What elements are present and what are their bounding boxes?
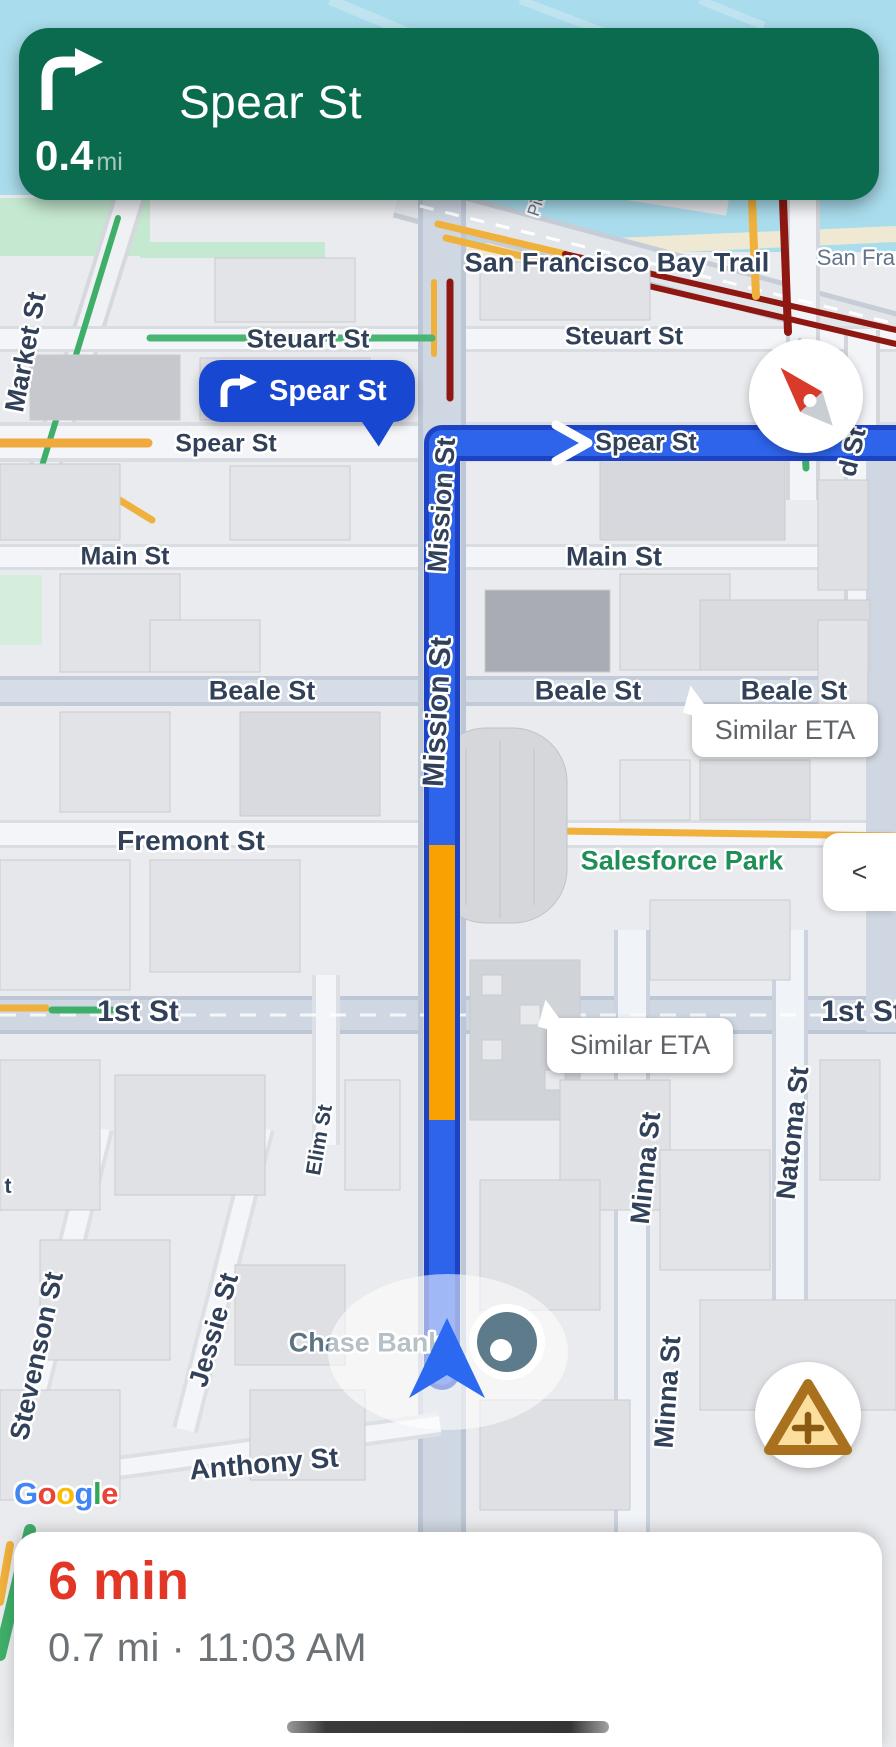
trip-eta: 6 min (48, 1550, 189, 1612)
map-label-bay-trail: San Francisco Bay Trail (465, 248, 770, 279)
map-label-spear-right: Spear St (595, 429, 696, 458)
map-label-spear-left: Spear St (175, 430, 276, 459)
alternate-route-bubble[interactable]: Similar ETA (547, 1018, 733, 1073)
navigation-banner[interactable]: 0.4mi Spear St (19, 28, 879, 200)
trip-details: 0.7 mi · 11:03 AM (48, 1626, 367, 1671)
map-label-san-fran-partial: San Fran (817, 245, 896, 271)
trip-bottom-sheet[interactable]: 6 min 0.7 mi · 11:03 AM (14, 1532, 882, 1747)
map-label-beale-left: Beale St (209, 676, 316, 707)
turn-callout: Spear St (199, 360, 415, 422)
turn-right-icon (217, 374, 257, 408)
map-label-beale-center: Beale St (535, 676, 642, 707)
sheet-drag-handle[interactable] (287, 1721, 609, 1733)
dark-building (485, 590, 610, 672)
map-label-first-right: 1st St (821, 995, 896, 1029)
eta-bubble-text: Similar ETA (570, 1030, 711, 1061)
alternate-route-bubble[interactable]: Similar ETA (692, 704, 878, 757)
compass-button[interactable] (749, 339, 863, 453)
report-incident-button[interactable] (755, 1362, 861, 1468)
turn-callout-label: Spear St (269, 375, 387, 408)
map-label-main-right: Main St (566, 542, 662, 573)
google-logo: Google (14, 1476, 118, 1512)
map-label-street-partial: t (5, 1175, 12, 1199)
distance-to-maneuver: 0.4mi (35, 132, 123, 180)
map-label-salesforce-park: Salesforce Park (581, 846, 784, 877)
map-label-first-left: 1st St (97, 995, 179, 1029)
next-street-name: Spear St (179, 28, 362, 176)
maps-navigation-screen: San Francisco Bay Trail San Fran Pie Ste… (0, 0, 896, 1747)
map-label-steuart-left: Steuart St (247, 324, 370, 355)
distance-unit: mi (96, 148, 122, 176)
turn-right-arrow-icon (37, 48, 103, 110)
compass-needle-icon (749, 339, 863, 453)
map-label-fremont: Fremont St (117, 825, 265, 857)
collapse-panel-button[interactable]: < (823, 833, 896, 911)
distance-value: 0.4 (35, 132, 93, 179)
map-label-steuart-right: Steuart St (565, 323, 683, 352)
map-label-chase-bank: Chase Bank (289, 1328, 444, 1359)
map-label-beale-right: Beale St (741, 676, 848, 707)
map-label-main-left: Main St (81, 543, 170, 572)
collapse-chevron-icon: < (852, 857, 868, 888)
eta-bubble-text: Similar ETA (715, 715, 856, 746)
warning-triangle-icon (755, 1362, 861, 1468)
